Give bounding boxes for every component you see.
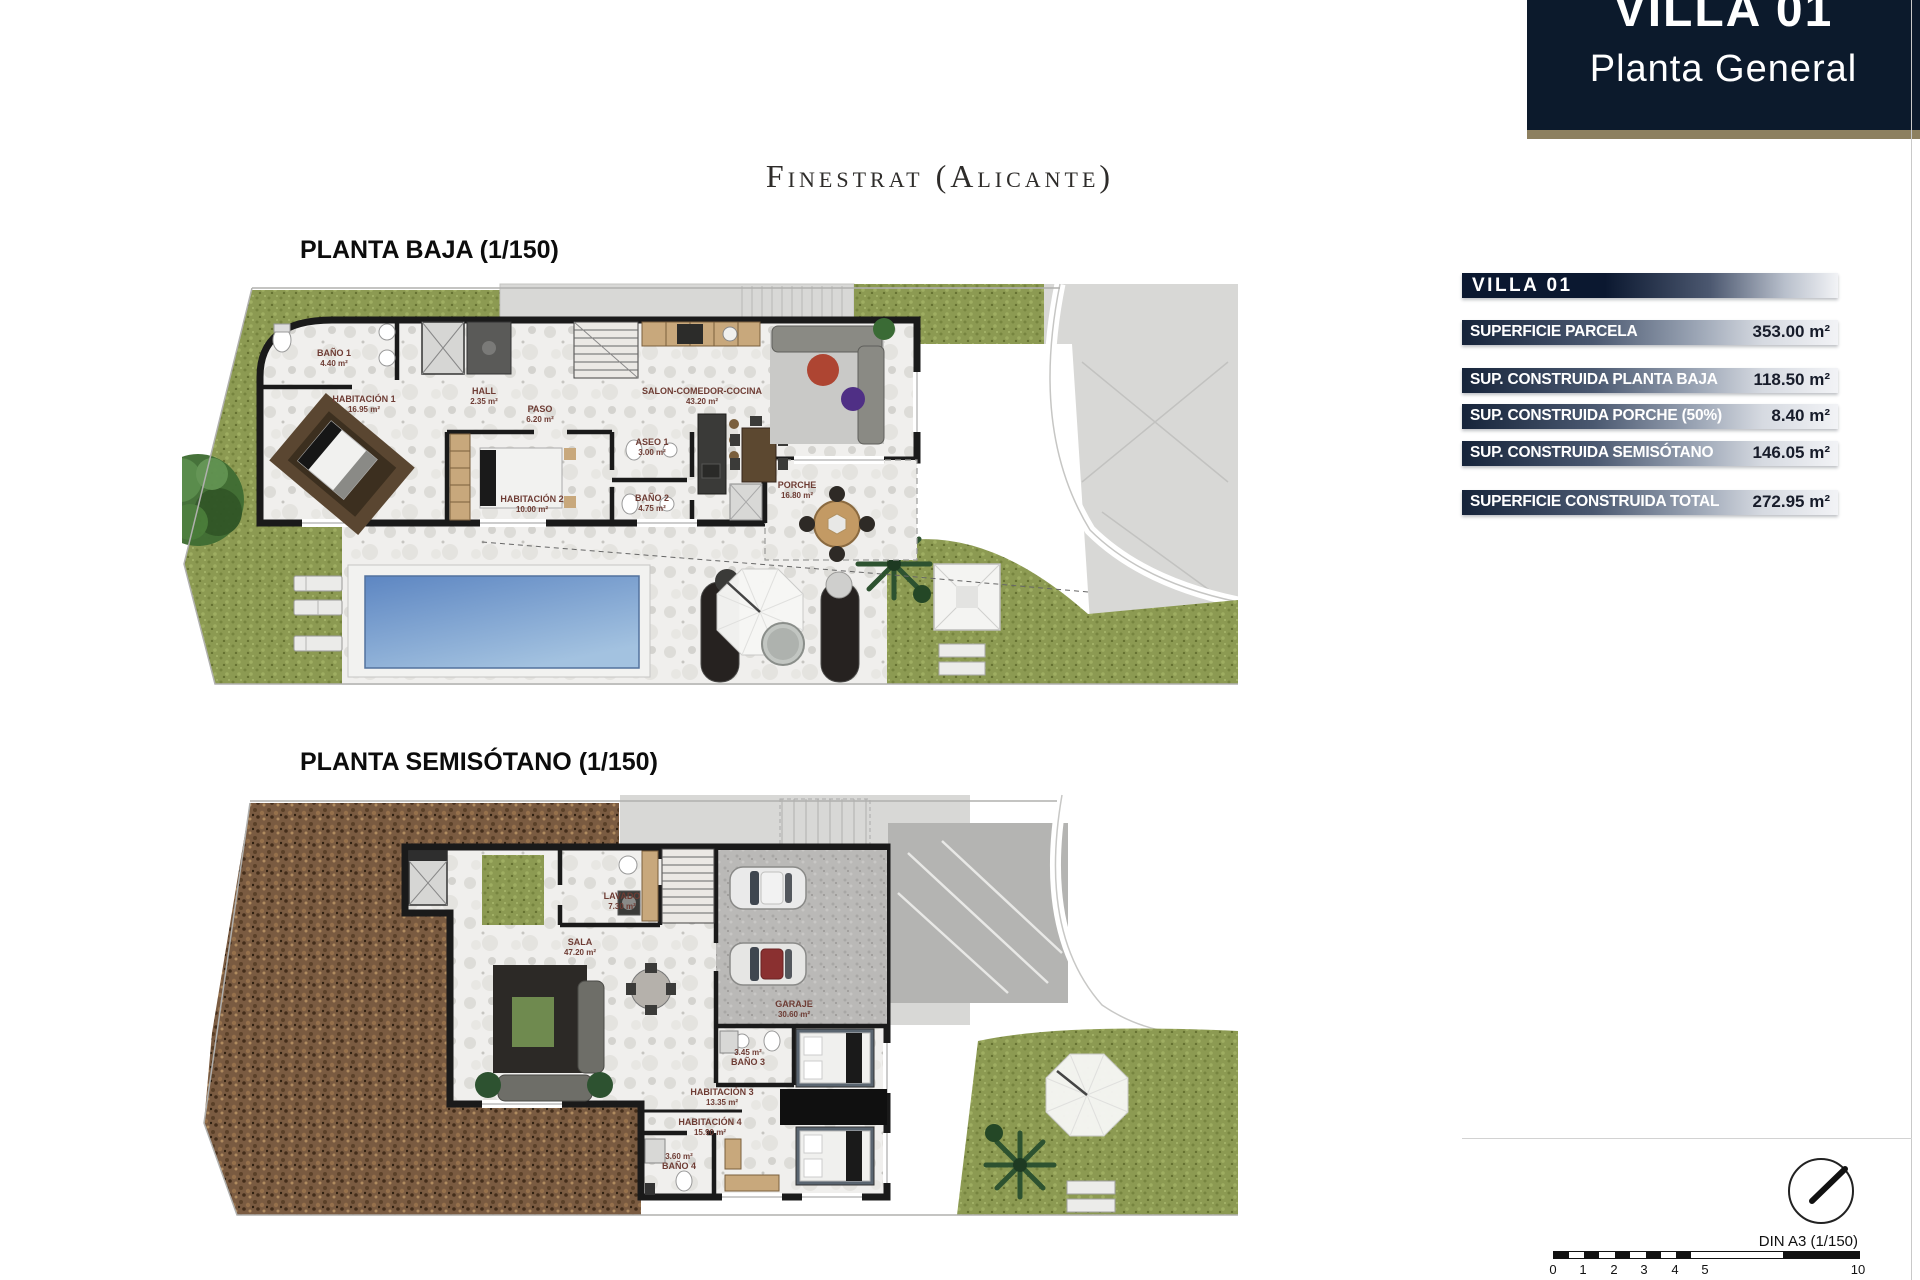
plant bbox=[873, 318, 895, 340]
parcel-boundary-curve bbox=[1055, 795, 1238, 1035]
room-label-habitacion4: HABITACIÓN 4 bbox=[678, 1116, 741, 1127]
room-label-habitacion3: HABITACIÓN 3 bbox=[690, 1086, 753, 1097]
room-area-lavado: 7.30 m² bbox=[608, 902, 636, 911]
room-label-sala: SALA bbox=[568, 937, 593, 947]
room-area-banio3: 3.45 m² bbox=[734, 1048, 762, 1057]
planta-baja-label: PLANTA BAJA (1/150) bbox=[300, 236, 559, 265]
sheet-frame-line bbox=[1462, 1138, 1912, 1139]
surface-summary-table: VILLA 01 SUPERFICIE PARCELA 353.00 m² SU… bbox=[1462, 273, 1838, 518]
room-label-paso: PASO bbox=[528, 404, 553, 414]
sun-loungers bbox=[294, 576, 342, 651]
plan-sheet: VILLA 01 Planta General Finestrat (Alica… bbox=[0, 0, 1920, 1280]
round-table bbox=[631, 969, 671, 1009]
room-area-habitacion1: 16.95 m² bbox=[348, 405, 380, 414]
living-area bbox=[770, 318, 895, 444]
summary-title-row: VILLA 01 bbox=[1462, 273, 1838, 298]
headboard-wall bbox=[780, 1089, 887, 1125]
location-title: Finestrat (Alicante) bbox=[340, 158, 1540, 195]
room-area-habitacion2: 10.00 m² bbox=[516, 505, 548, 514]
scale-tick-labels: 0 1 2 3 4 5 10 bbox=[1553, 1259, 1858, 1275]
room-label-lavado: LAVADO bbox=[604, 891, 641, 901]
summary-row-total: SUPERFICIE CONSTRUIDA TOTAL 272.95 m² bbox=[1462, 490, 1838, 515]
room-label-banio3: BAÑO 3 bbox=[731, 1057, 765, 1067]
courtyard-grass bbox=[482, 855, 544, 925]
villa-title: VILLA 01 bbox=[1527, 0, 1920, 38]
planta-semisotano-label: PLANTA SEMISÓTANO (1/150) bbox=[300, 748, 658, 777]
sofa bbox=[578, 981, 604, 1073]
pouf-red bbox=[807, 354, 839, 386]
sofa bbox=[498, 1075, 592, 1101]
elevator bbox=[422, 322, 464, 374]
plant bbox=[475, 1072, 501, 1098]
plant bbox=[587, 1072, 613, 1098]
room-label-hall: HALL bbox=[472, 386, 496, 396]
room-label-habitacion2: HABITACIÓN 2 bbox=[500, 493, 563, 504]
summary-row-parcela: SUPERFICIE PARCELA 353.00 m² bbox=[1462, 320, 1838, 345]
room-label-banio1: BAÑO 1 bbox=[317, 348, 351, 358]
kitchen-cabinets bbox=[642, 322, 760, 346]
room-label-banio2: BAÑO 2 bbox=[635, 493, 669, 503]
elevator bbox=[409, 851, 447, 905]
planta-semisotano-drawing: LAVADO 7.30 m² SALA 47.20 m² GARAJE 30.6… bbox=[182, 793, 1242, 1218]
summary-row-semisotano: SUP. CONSTRUIDA SEMISÓTANO 146.05 m² bbox=[1462, 441, 1838, 466]
north-compass-icon bbox=[1786, 1156, 1856, 1226]
room-label-banio4: BAÑO 4 bbox=[662, 1161, 696, 1171]
room-area-banio4: 3.60 m² bbox=[665, 1152, 693, 1161]
house-planta-baja bbox=[260, 318, 921, 562]
room-area-aseo1: 3.00 m² bbox=[638, 448, 666, 457]
bed-3 bbox=[796, 1029, 874, 1087]
room-area-hall: 2.35 m² bbox=[470, 397, 498, 406]
pouf-purple bbox=[841, 387, 865, 411]
room-area-banio2: 4.75 m² bbox=[638, 504, 666, 513]
green-rug bbox=[512, 997, 554, 1047]
sheet-title: Planta General bbox=[1527, 48, 1920, 91]
planta-baja-drawing: BAÑO 1 4.40 m² HABITACIÓN 1 16.95 m² HAL… bbox=[182, 282, 1242, 702]
room-area-paso: 6.20 m² bbox=[526, 415, 554, 424]
room-area-porche: 16.80 m² bbox=[781, 491, 813, 500]
room-label-garaje: GARAJE bbox=[775, 999, 813, 1009]
summary-row-planta-baja: SUP. CONSTRUIDA PLANTA BAJA 118.50 m² bbox=[1462, 368, 1838, 393]
room-area-sala: 47.20 m² bbox=[564, 948, 596, 957]
summary-row-porche: SUP. CONSTRUIDA PORCHE (50%) 8.40 m² bbox=[1462, 404, 1838, 429]
din-scale-label: DIN A3 (1/150) bbox=[1698, 1233, 1858, 1250]
title-accent-bar bbox=[1527, 130, 1920, 139]
shower-unit bbox=[467, 322, 511, 374]
parcel-boundary-line bbox=[1055, 795, 1238, 1035]
room-area-garaje: 30.60 m² bbox=[778, 1010, 810, 1019]
room-area-salon: 43.20 m² bbox=[686, 397, 718, 406]
summary-title: VILLA 01 bbox=[1462, 273, 1838, 297]
room-area-banio1: 4.40 m² bbox=[320, 359, 348, 368]
staircase bbox=[574, 322, 638, 378]
room-label-aseo1: ASEO 1 bbox=[635, 437, 668, 447]
title-block: VILLA 01 Planta General bbox=[1527, 0, 1920, 130]
bed-4 bbox=[796, 1127, 874, 1185]
scale-bar bbox=[1553, 1251, 1860, 1259]
room-label-porche: PORCHE bbox=[778, 480, 817, 490]
side-pouf bbox=[826, 572, 852, 598]
room-area-habitacion4: 15.90 m² bbox=[694, 1128, 726, 1137]
staircase bbox=[662, 849, 714, 923]
room-area-habitacion3: 13.35 m² bbox=[706, 1098, 738, 1107]
graphic-scale-bar: 0 1 2 3 4 5 10 bbox=[1553, 1251, 1858, 1279]
car-2 bbox=[730, 943, 806, 985]
room-label-habitacion1: HABITACIÓN 1 bbox=[332, 393, 395, 404]
outdoor-lounge bbox=[701, 569, 859, 682]
car-1 bbox=[730, 867, 806, 909]
room-label-salon: SALON-COMEDOR-COCINA bbox=[642, 386, 762, 396]
sheet-frame-line bbox=[1911, 0, 1912, 1280]
swimming-pool bbox=[365, 576, 639, 668]
